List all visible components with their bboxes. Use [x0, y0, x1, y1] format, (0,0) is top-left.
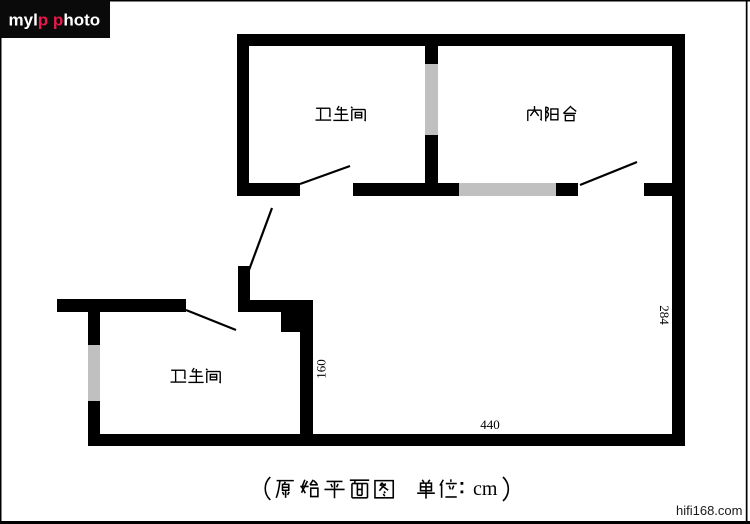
svg-text:440: 440: [480, 417, 500, 432]
svg-text:284: 284: [657, 305, 672, 325]
svg-text:hifi168.com: hifi168.com: [676, 503, 742, 518]
svg-text:cm: cm: [473, 478, 498, 500]
svg-text:160: 160: [314, 359, 329, 379]
svg-text:mylp photo: mylp photo: [9, 11, 101, 30]
